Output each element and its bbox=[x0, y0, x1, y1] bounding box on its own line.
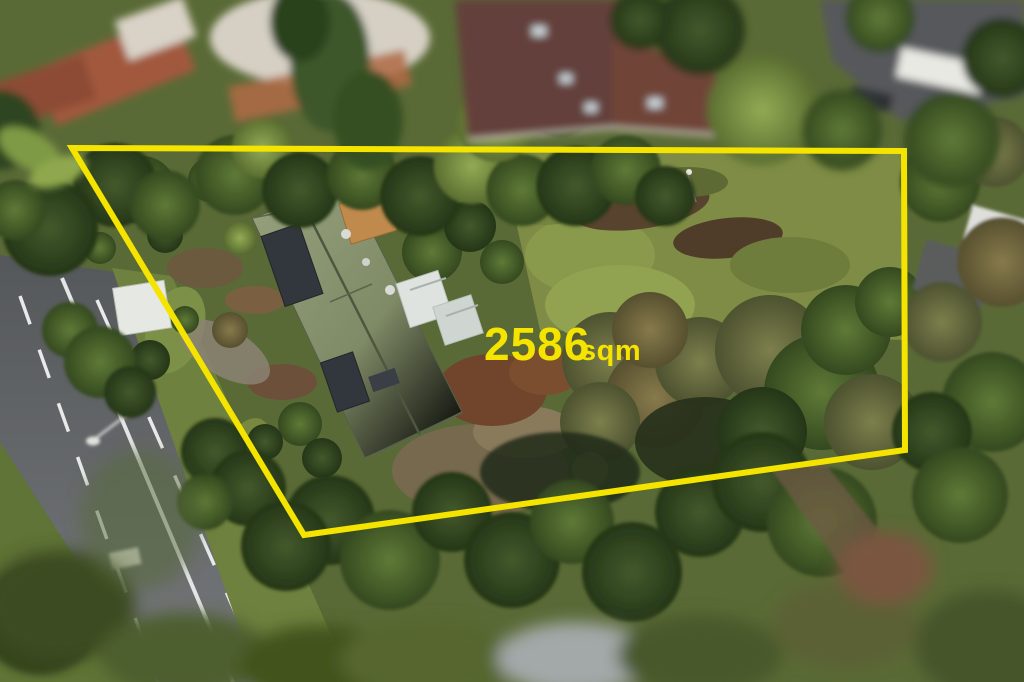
aerial-property-photo: 2586 sqm bbox=[0, 0, 1024, 682]
street-light-lamp bbox=[86, 437, 100, 446]
area-unit: sqm bbox=[580, 335, 641, 367]
autumn-tree bbox=[837, 532, 933, 604]
white-shed bbox=[113, 280, 172, 336]
photo-canvas: 2586 sqm bbox=[0, 0, 1024, 682]
area-value: 2586 bbox=[484, 318, 590, 370]
maroon-roof-house bbox=[455, 0, 620, 140]
